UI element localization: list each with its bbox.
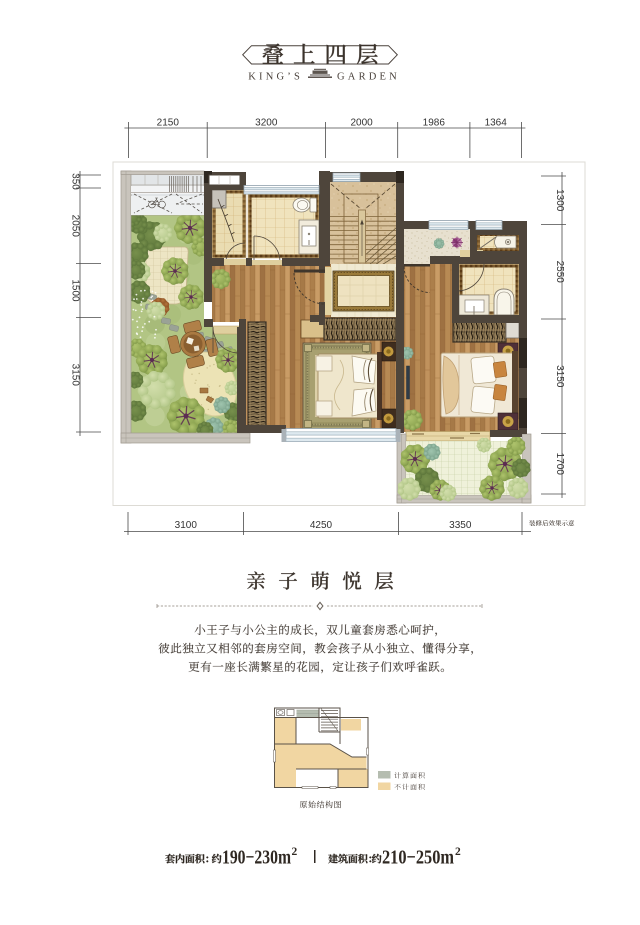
svg-text:GARDEN: GARDEN bbox=[337, 72, 400, 83]
svg-text:3100: 3100 bbox=[175, 520, 198, 531]
svg-text:1986: 1986 bbox=[423, 118, 446, 129]
svg-text:1300: 1300 bbox=[554, 189, 565, 212]
svg-text:1500: 1500 bbox=[70, 279, 81, 302]
svg-text:1700: 1700 bbox=[554, 453, 565, 476]
svg-text:350: 350 bbox=[70, 173, 81, 190]
svg-text:3350: 3350 bbox=[449, 520, 472, 531]
svg-text:2000: 2000 bbox=[350, 118, 373, 129]
svg-text:3200: 3200 bbox=[255, 118, 278, 129]
svg-text:4250: 4250 bbox=[310, 520, 333, 531]
svg-text:190−230m: 190−230m bbox=[222, 847, 291, 869]
svg-text:2050: 2050 bbox=[70, 215, 81, 238]
svg-text:2150: 2150 bbox=[157, 118, 180, 129]
svg-text:3150: 3150 bbox=[70, 364, 81, 387]
svg-text:2: 2 bbox=[455, 846, 461, 858]
svg-text:3150: 3150 bbox=[554, 365, 565, 388]
svg-text:2550: 2550 bbox=[554, 261, 565, 284]
svg-text:2: 2 bbox=[292, 846, 298, 858]
svg-text:210−250m: 210−250m bbox=[382, 847, 454, 869]
svg-text:1364: 1364 bbox=[485, 118, 508, 129]
svg-text:KING’S: KING’S bbox=[248, 72, 303, 83]
